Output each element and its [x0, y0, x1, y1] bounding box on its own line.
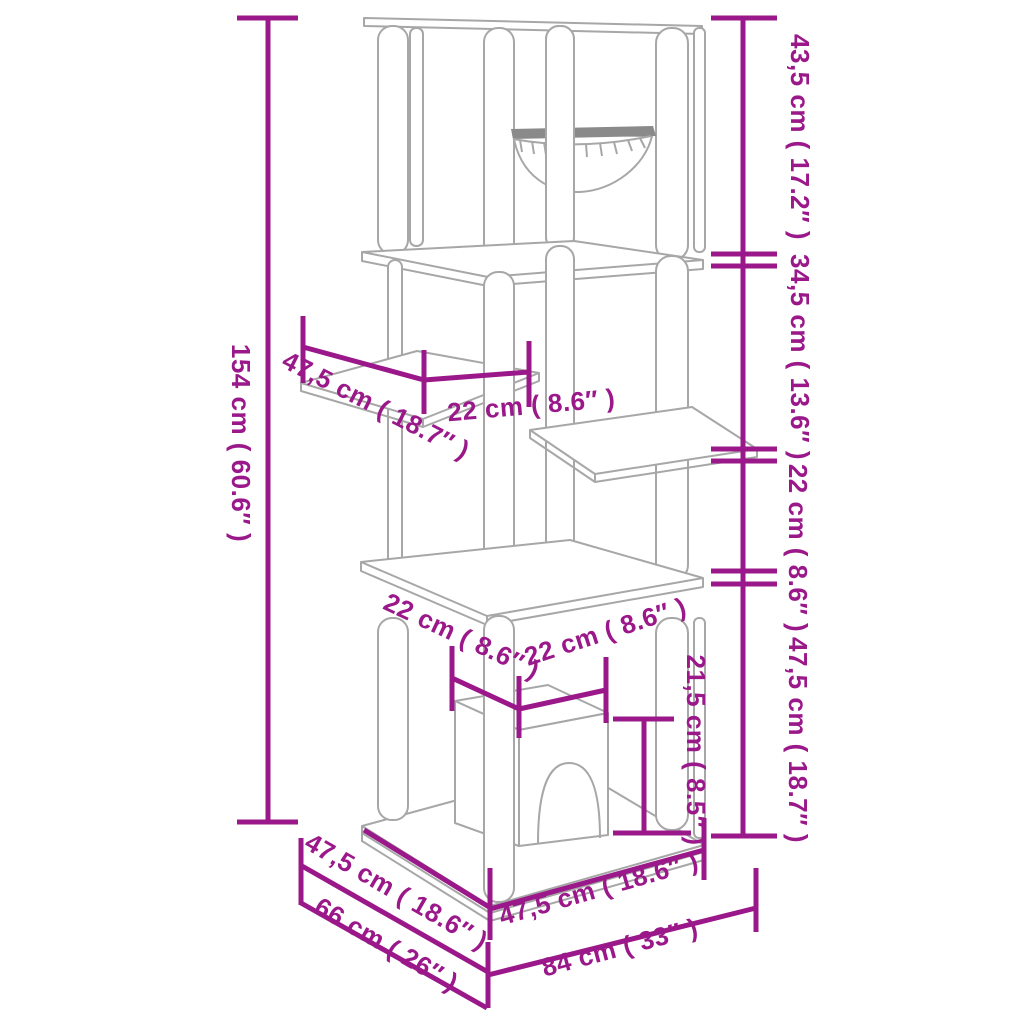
scratching-post-back-left [410, 28, 423, 246]
dim-label-upper-mid-section: 34,5 cm ( 13.6″ ) [785, 254, 815, 460]
scratching-post-top-left [378, 26, 408, 254]
dim-label-house-height: 21,5 cm ( 8.5″ ) [681, 655, 711, 846]
dim-label-lower-mid-section: 22 cm ( 8.6″ ) [783, 464, 813, 632]
scratching-post-top-right [656, 28, 688, 260]
scratching-post-top-center-front [546, 26, 574, 250]
scratching-post-bottom-left [378, 618, 408, 820]
second-platform [362, 241, 703, 286]
cat-house [455, 685, 608, 846]
scratching-post-top-front [484, 28, 514, 270]
dim-label-top-section: 43,5 cm ( 17.2″ ) [785, 34, 815, 240]
cat-tree-drawing: 154 cm ( 60.6″ ) 43,5 cm ( 17.2″ ) 34,5 … [0, 0, 1024, 1024]
scratching-post-back-right [694, 28, 705, 252]
hanging-basket [511, 26, 656, 250]
dim-label-bottom-section: 47,5 cm ( 18.7″ ) [783, 637, 813, 843]
dim-label-footprint-width: 84 cm ( 33″ ) [538, 912, 701, 983]
dim-label-total-height: 154 cm ( 60.6″ ) [226, 344, 256, 542]
dimension-diagram: 154 cm ( 60.6″ ) 43,5 cm ( 17.2″ ) 34,5 … [0, 0, 1024, 1024]
house-front-wall [519, 713, 608, 846]
